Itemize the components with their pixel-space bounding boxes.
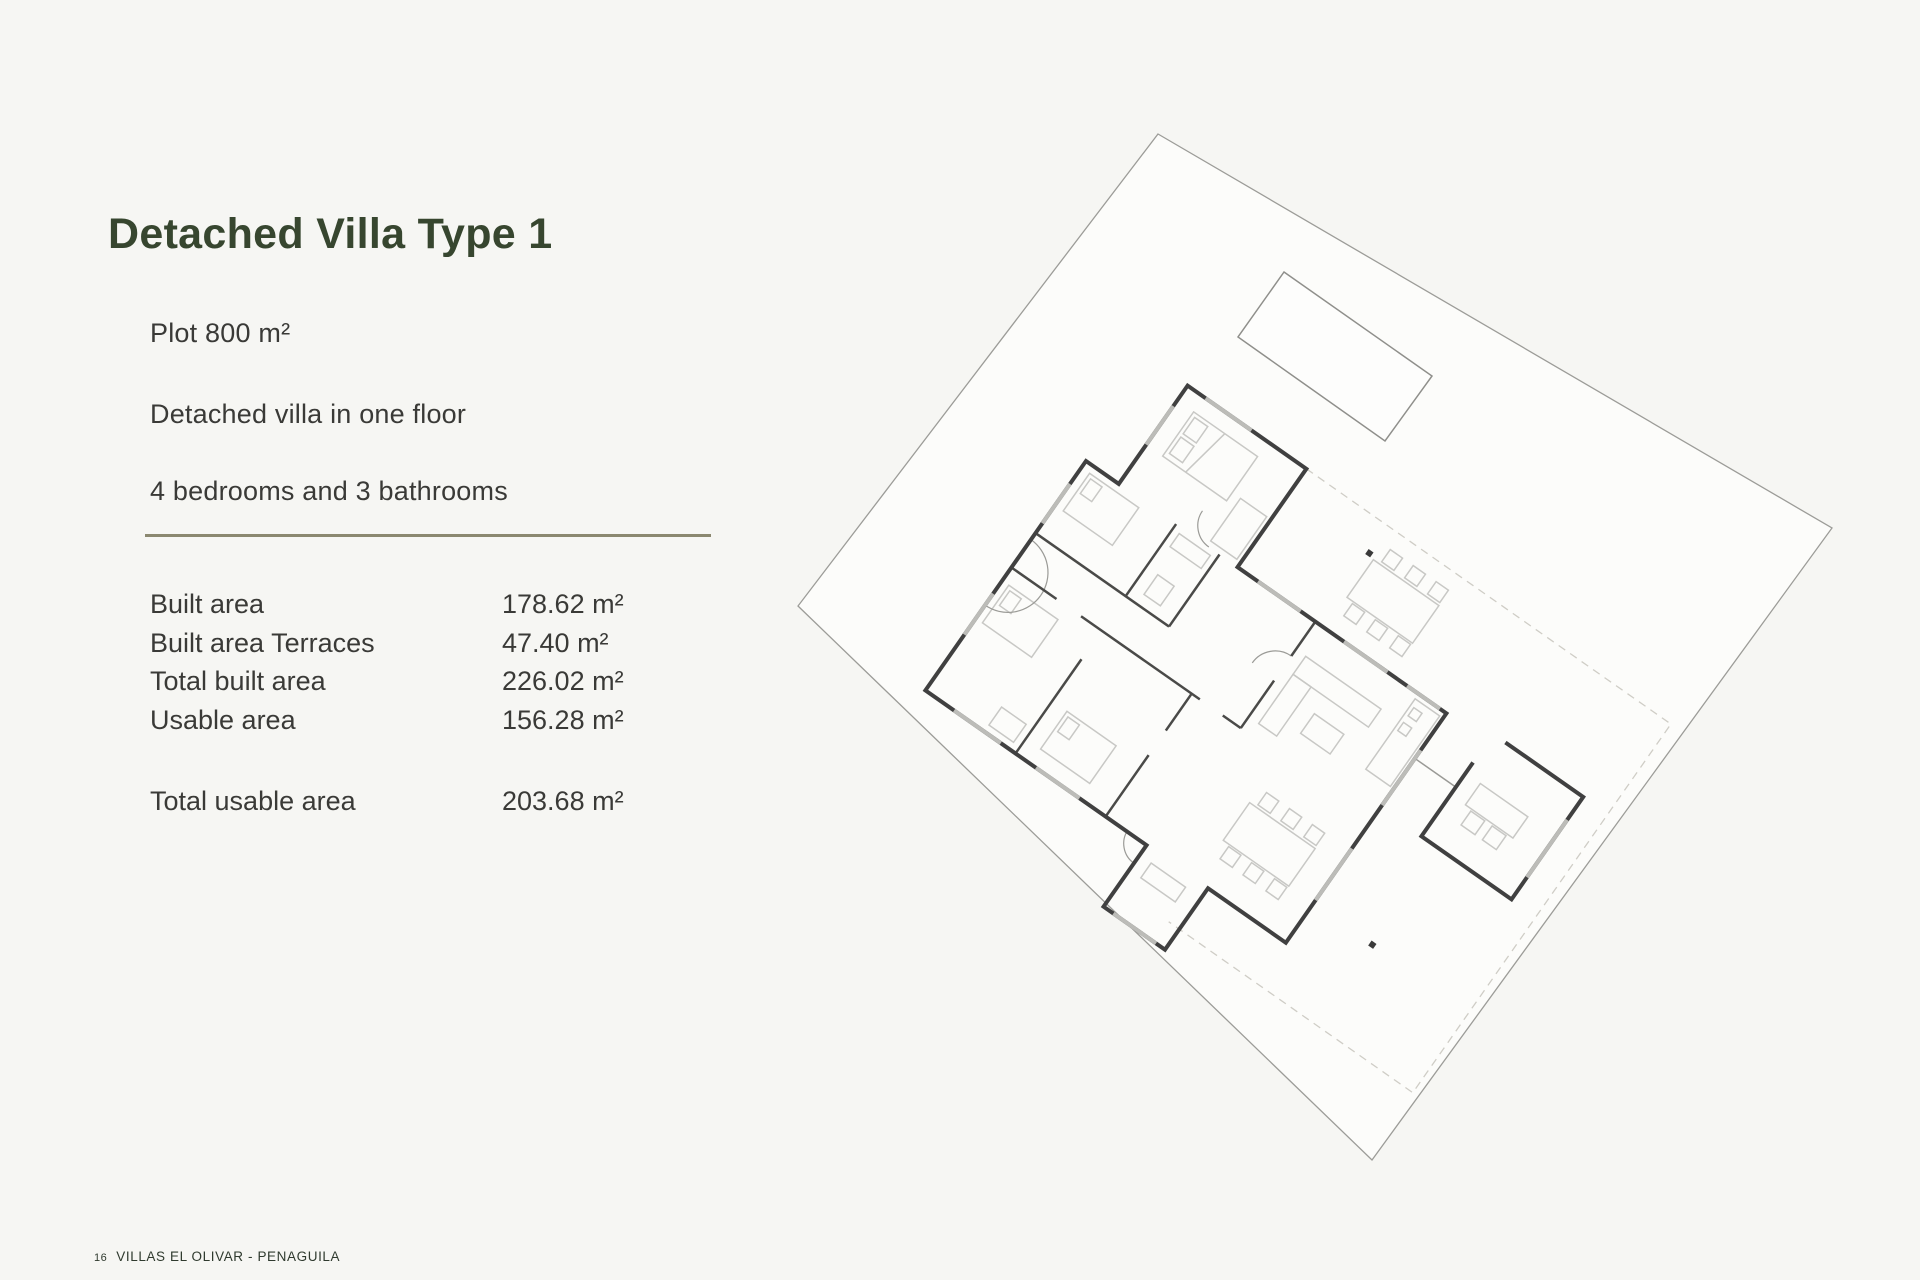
plot-boundary	[798, 134, 1832, 1160]
site-plan-drawing	[0, 0, 1920, 1280]
